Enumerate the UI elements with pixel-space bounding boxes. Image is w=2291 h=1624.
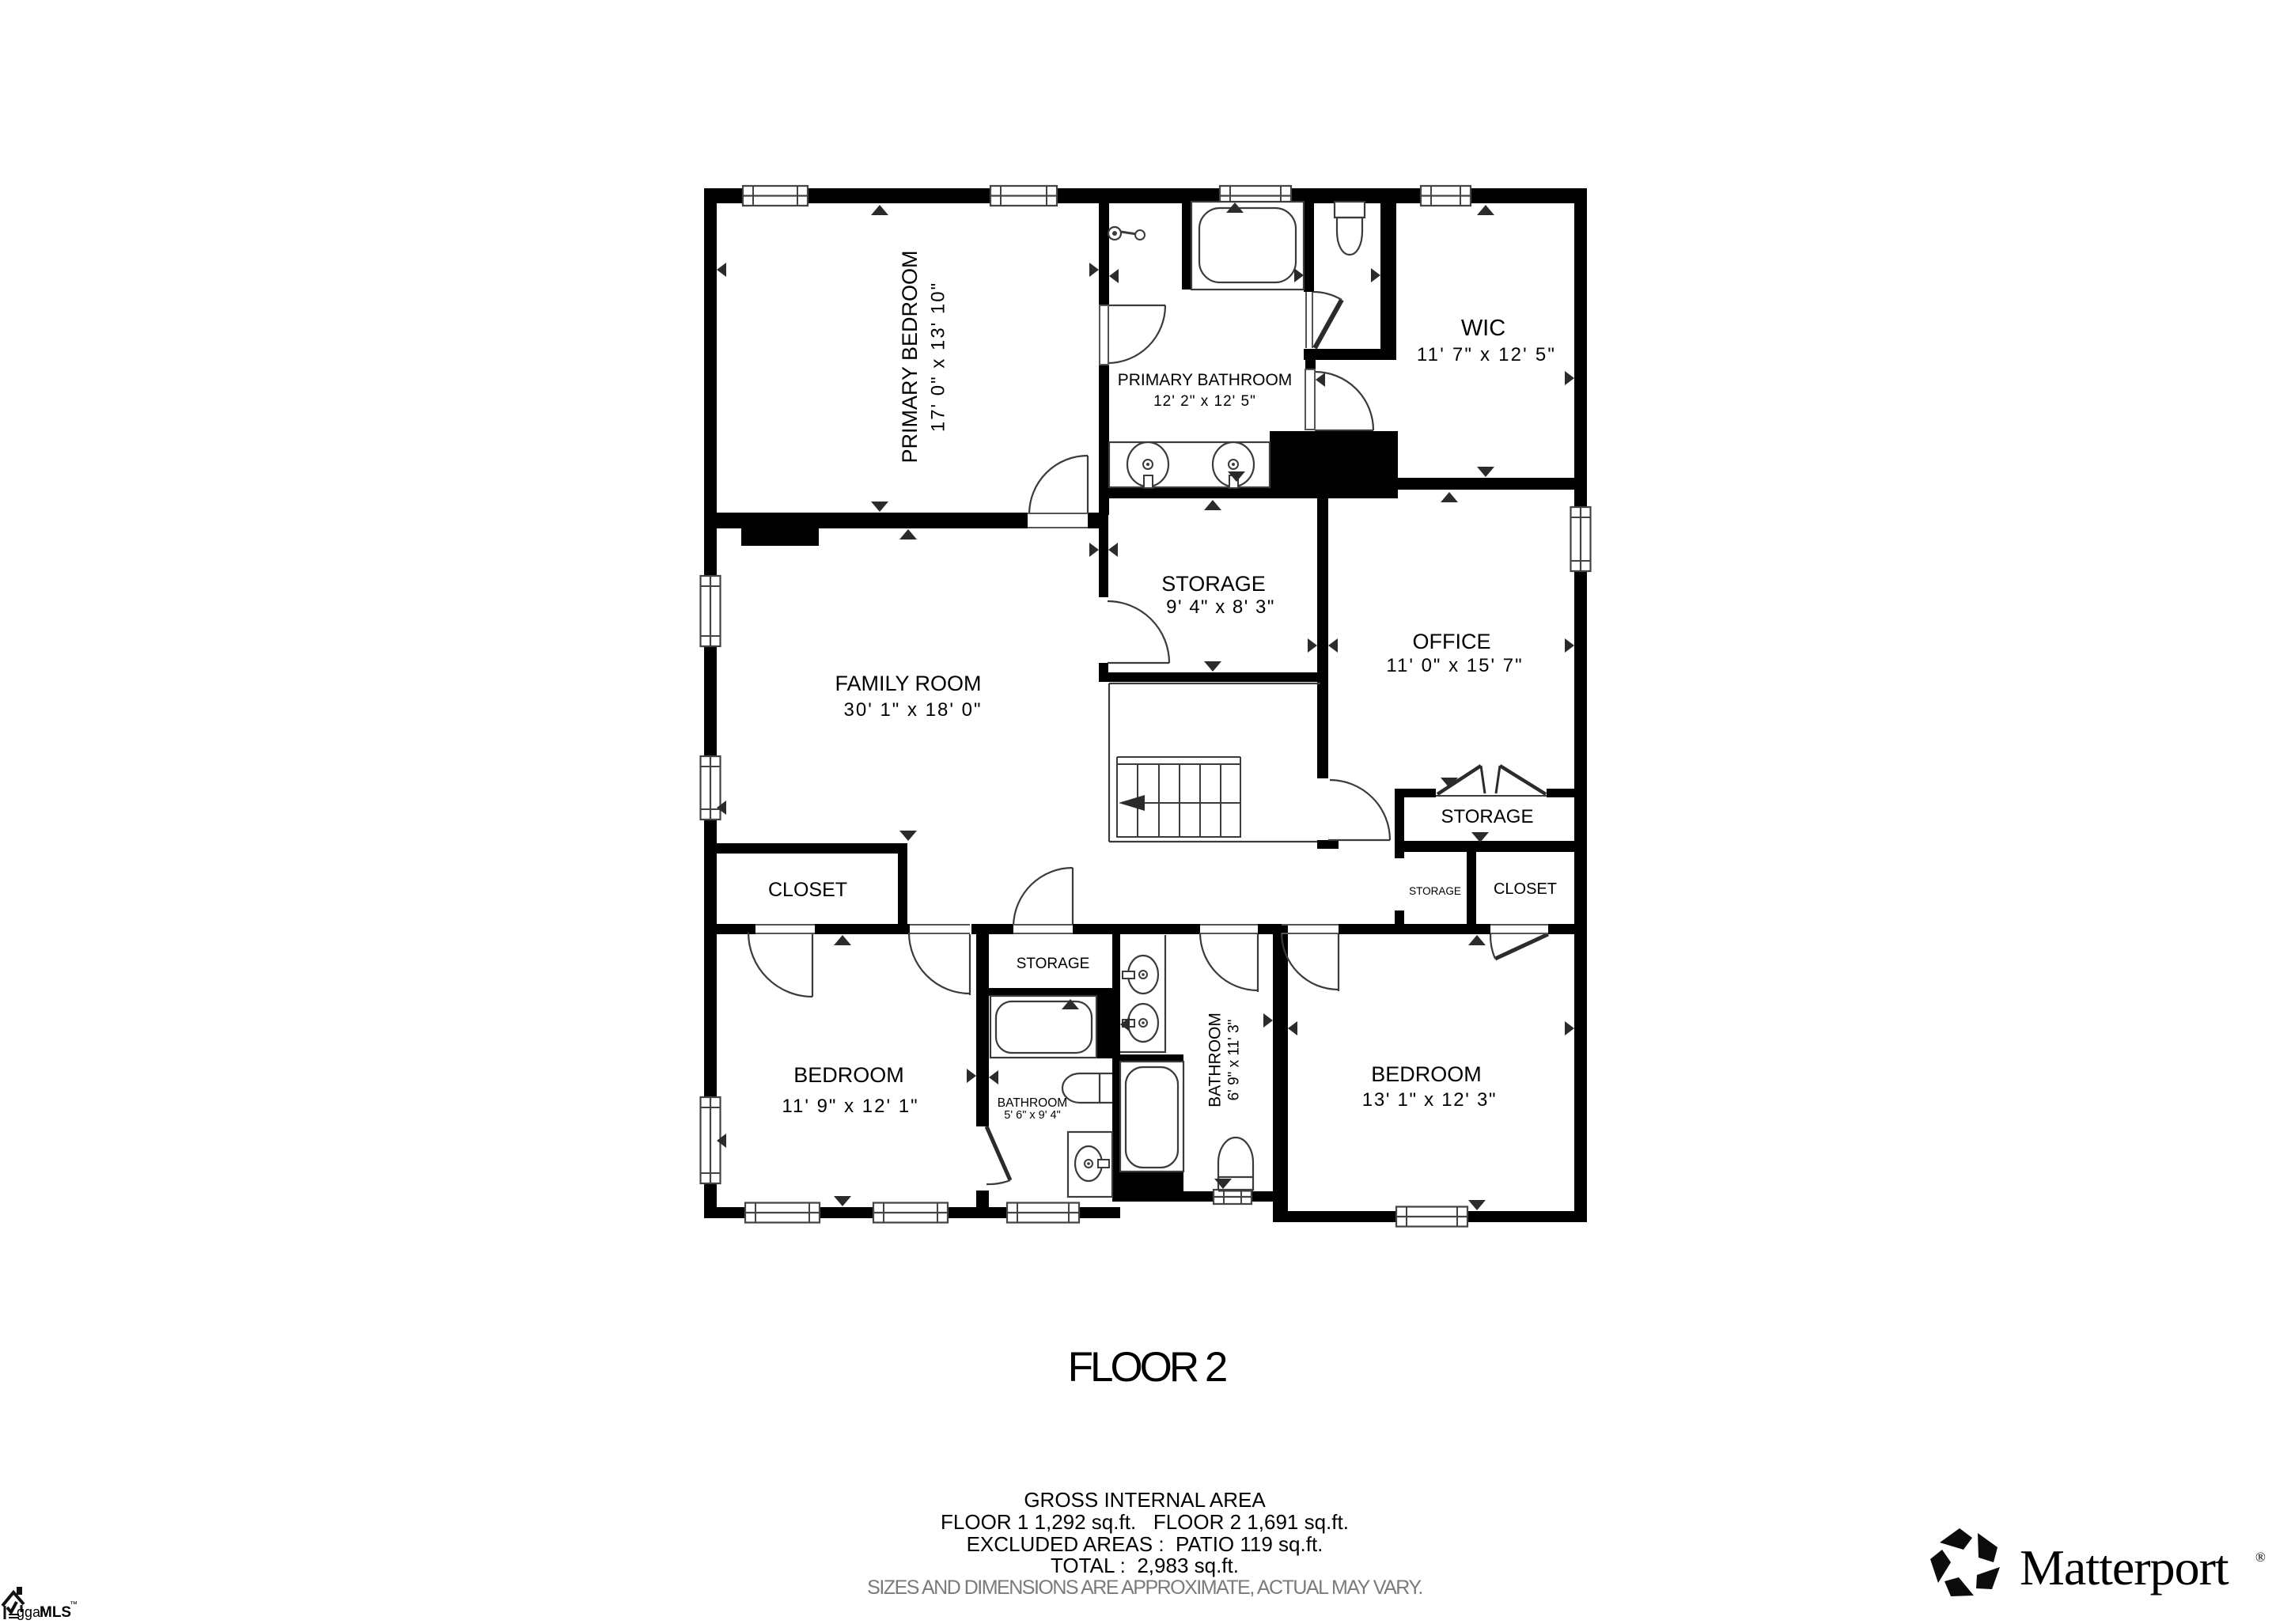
svg-text:STORAGE: STORAGE	[1441, 806, 1534, 827]
svg-text:MLS: MLS	[40, 1604, 71, 1620]
svg-text:17' 0" x 13' 10": 17' 0" x 13' 10"	[928, 282, 949, 432]
svg-text:11' 0" x 15' 7": 11' 0" x 15' 7"	[1386, 655, 1523, 676]
svg-text:®: ®	[2255, 1550, 2266, 1565]
svg-text:FAMILY ROOM: FAMILY ROOM	[835, 672, 981, 695]
svg-text:12' 2" x 12' 5": 12' 2" x 12' 5"	[1153, 393, 1256, 410]
svg-text:11' 7" x 12' 5": 11' 7" x 12' 5"	[1417, 344, 1556, 365]
svg-text:9' 4" x 8' 3": 9' 4" x 8' 3"	[1166, 596, 1275, 618]
svg-text:OFFICE: OFFICE	[1413, 630, 1491, 653]
svg-text:GROSS INTERNAL AREA: GROSS INTERNAL AREA	[1024, 1488, 1266, 1512]
svg-text:BATHROOM: BATHROOM	[998, 1096, 1067, 1110]
svg-text:13' 1" x 12' 3": 13' 1" x 12' 3"	[1362, 1089, 1497, 1111]
svg-text:30' 1" x 18' 0": 30' 1" x 18' 0"	[844, 699, 983, 721]
svg-text:FLOOR 1 1,292 sq.ft. FLOOR 2: FLOOR 1 1,292 sq.ft. FLOOR 2 1,691 sq.ft…	[941, 1510, 1349, 1534]
svg-text:CLOSET: CLOSET	[768, 879, 847, 901]
svg-text:Matterport: Matterport	[2020, 1539, 2229, 1596]
svg-text:BEDROOM: BEDROOM	[1371, 1062, 1482, 1086]
svg-text:STORAGE: STORAGE	[1409, 885, 1461, 897]
svg-text:PRIMARY BEDROOM: PRIMARY BEDROOM	[898, 250, 922, 463]
svg-text:™: ™	[70, 1600, 78, 1609]
svg-text:BEDROOM: BEDROOM	[793, 1063, 904, 1087]
svg-text:STORAGE: STORAGE	[1161, 572, 1266, 596]
svg-text:11' 9" x 12' 1": 11' 9" x 12' 1"	[782, 1096, 918, 1117]
svg-text:FLOOR 2: FLOOR 2	[1068, 1344, 1226, 1391]
svg-text:PRIMARY BATHROOM: PRIMARY BATHROOM	[1118, 371, 1293, 389]
svg-text:CLOSET: CLOSET	[1494, 880, 1557, 898]
svg-text:BATHROOM: BATHROOM	[1206, 1013, 1225, 1107]
svg-text:TOTAL : 2,983 sq.ft.: TOTAL : 2,983 sq.ft.	[1051, 1554, 1239, 1577]
svg-text:EXCLUDED AREAS : PATIO 119 sq: EXCLUDED AREAS : PATIO 119 sq.ft.	[967, 1532, 1323, 1556]
svg-text:STORAGE: STORAGE	[1017, 956, 1090, 972]
svg-text:5' 6" x 9' 4": 5' 6" x 9' 4"	[1004, 1109, 1060, 1122]
svg-text:SIZES AND DIMENSIONS ARE APPRO: SIZES AND DIMENSIONS ARE APPROXIMATE, AC…	[867, 1577, 1422, 1599]
svg-text:WIC: WIC	[1461, 316, 1505, 341]
svg-text:6' 9" x 11' 3": 6' 9" x 11' 3"	[1226, 1020, 1243, 1101]
